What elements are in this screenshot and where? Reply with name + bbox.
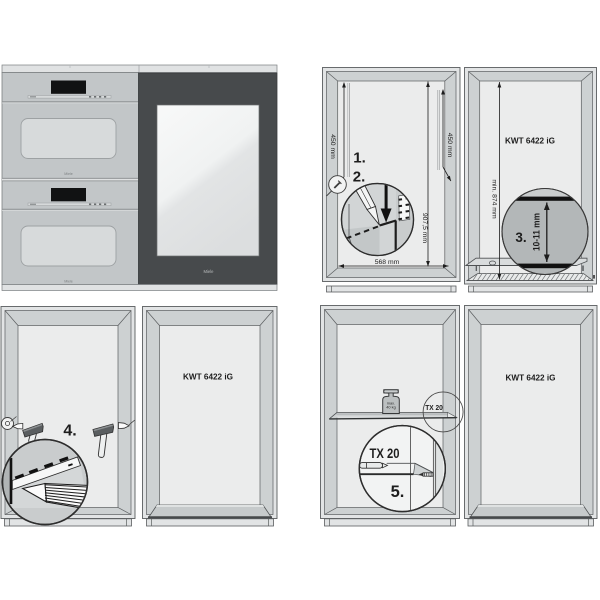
svg-text:450 mm: 450 mm	[329, 134, 336, 159]
svg-text:TX 20: TX 20	[370, 446, 400, 461]
svg-text:568 mm: 568 mm	[375, 259, 400, 266]
svg-text:1.: 1.	[353, 150, 366, 167]
svg-text:4.: 4.	[63, 423, 76, 440]
svg-text:5.: 5.	[391, 483, 405, 501]
svg-text:min. 874 mm: min. 874 mm	[491, 179, 498, 219]
svg-text:10-11 mm: 10-11 mm	[532, 213, 542, 251]
svg-text:KWT 6422 iG: KWT 6422 iG	[505, 137, 555, 146]
svg-text:KWT 6422 iG: KWT 6422 iG	[183, 373, 233, 382]
svg-text:Miele: Miele	[64, 172, 73, 176]
svg-text:Miele: Miele	[64, 280, 73, 284]
svg-text:Miele: Miele	[203, 269, 214, 274]
svg-text:KWT 6422 iG: KWT 6422 iG	[505, 374, 555, 383]
svg-text:40 kg: 40 kg	[386, 405, 396, 410]
svg-text:3.: 3.	[515, 230, 526, 245]
svg-text:450 mm: 450 mm	[446, 133, 453, 158]
svg-text:2.: 2.	[353, 169, 366, 186]
svg-text:TX 20: TX 20	[425, 404, 443, 412]
svg-text:907,5 mm: 907,5 mm	[421, 213, 428, 244]
